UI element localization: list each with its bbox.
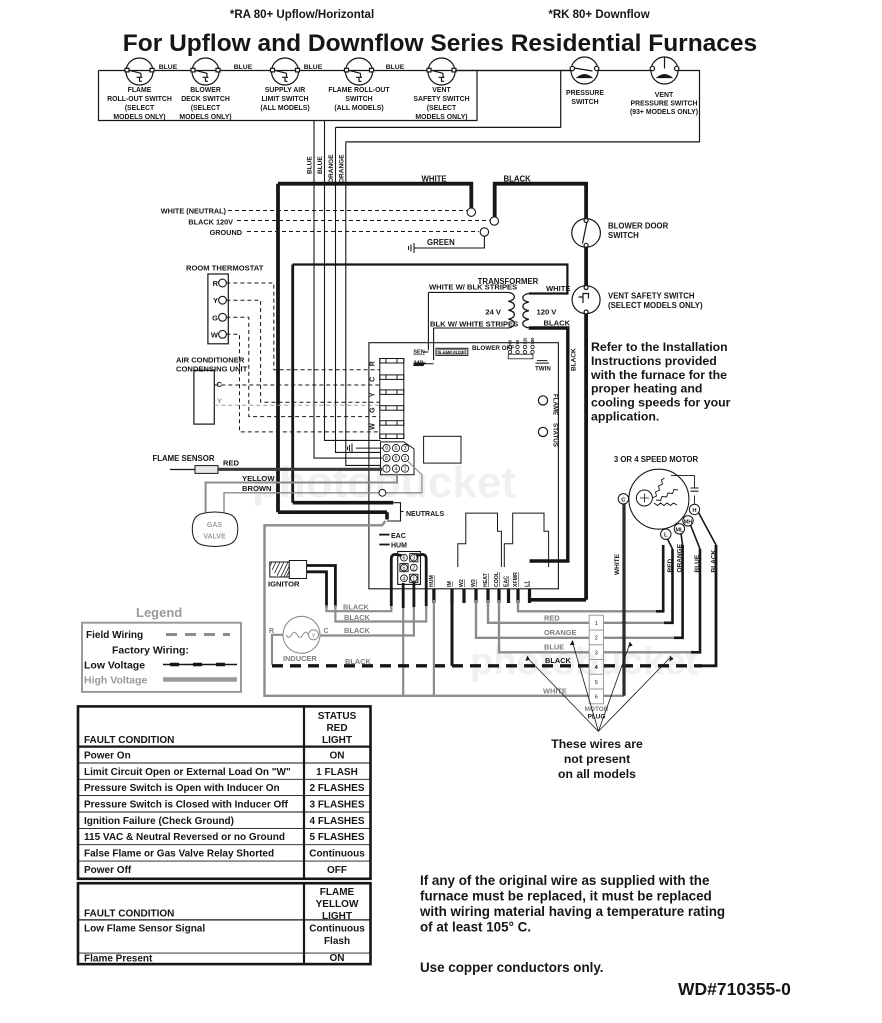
svg-text:1: 1 xyxy=(595,621,598,627)
svg-text:Use copper conductors only.: Use copper conductors only. xyxy=(420,960,604,975)
svg-text:Flame Present: Flame Present xyxy=(84,954,153,965)
svg-text:IGNITOR: IGNITOR xyxy=(268,580,300,589)
svg-text:photobucket: photobucket xyxy=(470,641,698,683)
svg-text:RED: RED xyxy=(223,459,240,468)
svg-text:3 FLASHES: 3 FLASHES xyxy=(309,799,364,810)
svg-text:4: 4 xyxy=(595,665,598,671)
svg-text:5: 5 xyxy=(403,566,406,572)
svg-text:L: L xyxy=(664,533,668,539)
svg-text:120 V: 120 V xyxy=(537,308,558,317)
svg-text:HUM: HUM xyxy=(429,575,435,587)
svg-text:W3: W3 xyxy=(471,579,477,587)
svg-text:L1: L1 xyxy=(525,581,531,587)
svg-text:4: 4 xyxy=(403,576,406,582)
svg-text:STATUS: STATUS xyxy=(552,423,559,447)
svg-text:2: 2 xyxy=(412,566,415,572)
svg-text:RED: RED xyxy=(667,558,674,572)
svg-text:6: 6 xyxy=(403,556,406,562)
svg-text:Low Voltage: Low Voltage xyxy=(84,660,145,672)
svg-text:8: 8 xyxy=(385,456,388,462)
svg-text:1: 1 xyxy=(404,467,407,473)
svg-text:HEAT: HEAT xyxy=(483,572,489,587)
svg-text:ON: ON xyxy=(330,953,345,964)
svg-text:False Flame or Gas Valve Relay: False Flame or Gas Valve Relay Shorted xyxy=(84,849,274,860)
svg-text:4 FLASHES: 4 FLASHES xyxy=(309,816,364,827)
svg-text:120: 120 xyxy=(523,337,528,345)
svg-text:BLUE: BLUE xyxy=(304,64,323,71)
svg-text:G: G xyxy=(212,313,218,322)
svg-text:SUPPLY AIRLIMIT SWITCH(ALL MOD: SUPPLY AIRLIMIT SWITCH(ALL MODELS) xyxy=(260,87,309,112)
svg-text:WHITE: WHITE xyxy=(614,553,621,575)
svg-text:WHITE (NEUTRAL): WHITE (NEUTRAL) xyxy=(161,207,227,216)
svg-text:EAC: EAC xyxy=(504,576,510,587)
svg-text:BLACK: BLACK xyxy=(344,613,371,622)
svg-text:Continuous: Continuous xyxy=(309,849,365,860)
svg-text:BLACK: BLACK xyxy=(711,549,718,572)
svg-text:*RK 80+ Downflow: *RK 80+ Downflow xyxy=(548,9,649,21)
svg-text:BLOWER OFF: BLOWER OFF xyxy=(472,345,514,352)
svg-text:1 FLASH: 1 FLASH xyxy=(316,767,358,778)
svg-text:BLACK: BLACK xyxy=(545,656,572,665)
svg-text:ROOM THERMOSTAT: ROOM THERMOSTAT xyxy=(186,264,264,273)
svg-text:H: H xyxy=(692,508,696,514)
svg-text:WHITE: WHITE xyxy=(543,687,567,696)
svg-text:GROUND: GROUND xyxy=(210,228,242,237)
svg-text:R: R xyxy=(370,361,377,366)
svg-text:ON: ON xyxy=(330,750,345,761)
svg-text:BLACK: BLACK xyxy=(344,626,371,635)
svg-text:WHITE W/ BLK STRIPES: WHITE W/ BLK STRIPES xyxy=(429,283,517,292)
svg-text:2 FLASHES: 2 FLASHES xyxy=(309,783,364,794)
svg-text:BLACK: BLACK xyxy=(544,319,571,328)
svg-text:G: G xyxy=(370,407,377,413)
svg-text:MH: MH xyxy=(684,519,692,525)
svg-text:BLUE: BLUE xyxy=(694,554,701,572)
svg-text:3 OR 4 SPEED MOTOR: 3 OR 4 SPEED MOTOR xyxy=(614,455,699,464)
svg-text:WHITE: WHITE xyxy=(546,284,570,293)
svg-text:BLUE: BLUE xyxy=(234,64,253,71)
svg-text:5 AMP FUSE: 5 AMP FUSE xyxy=(439,350,465,355)
svg-text:GAS: GAS xyxy=(207,522,223,529)
svg-text:C: C xyxy=(324,628,329,635)
svg-text:1: 1 xyxy=(412,576,415,582)
svg-text:W: W xyxy=(370,423,377,430)
svg-text:BLUE: BLUE xyxy=(317,156,324,174)
svg-text:BLACK 120V: BLACK 120V xyxy=(188,218,233,227)
svg-text:5 FLASHES: 5 FLASHES xyxy=(309,832,364,843)
svg-text:These wires arenot presenton a: These wires arenot presenton all models xyxy=(551,737,643,781)
svg-text:For Upflow and Downflow Series: For Upflow and Downflow Series Residenti… xyxy=(123,30,757,57)
svg-text:Y: Y xyxy=(370,392,377,397)
svg-text:BLUE: BLUE xyxy=(544,643,564,652)
svg-text:HUM: HUM xyxy=(391,543,407,550)
svg-text:ORANGE: ORANGE xyxy=(544,628,577,637)
svg-text:BLACK: BLACK xyxy=(343,603,370,612)
svg-text:BLUE: BLUE xyxy=(159,64,178,71)
svg-text:Low Flame Sensor Signal: Low Flame Sensor Signal xyxy=(84,924,205,935)
svg-text:ORANGE: ORANGE xyxy=(328,154,335,183)
svg-text:Power Off: Power Off xyxy=(84,865,132,876)
svg-text:VENT SAFETY SWITCH(SELECT MODE: VENT SAFETY SWITCH(SELECT MODELS ONLY) xyxy=(608,292,703,311)
svg-text:W2: W2 xyxy=(459,579,465,587)
svg-text:FAULT CONDITION: FAULT CONDITION xyxy=(84,735,174,746)
svg-text:Power On: Power On xyxy=(84,750,131,761)
svg-text:BLUE: BLUE xyxy=(307,156,314,174)
svg-text:Limit Circuit Open or External: Limit Circuit Open or External Load On "… xyxy=(84,767,291,778)
svg-text:60: 60 xyxy=(508,339,513,344)
svg-text:C: C xyxy=(370,377,377,382)
svg-text:Legend: Legend xyxy=(136,605,182,620)
svg-text:BLUE: BLUE xyxy=(386,64,405,71)
svg-text:Pressure Switch is Open with I: Pressure Switch is Open with Inducer On xyxy=(84,783,280,794)
svg-text:R: R xyxy=(213,279,219,288)
svg-text:BLK W/ WHITE STRIPES: BLK W/ WHITE STRIPES xyxy=(430,320,518,329)
svg-text:WHITE: WHITE xyxy=(422,175,447,184)
svg-text:Ignition Failure (Check Ground: Ignition Failure (Check Ground) xyxy=(84,816,234,827)
svg-text:ML: ML xyxy=(676,527,684,533)
svg-text:W: W xyxy=(211,330,219,339)
svg-text:INDUCER: INDUCER xyxy=(283,654,317,663)
svg-text:EAC: EAC xyxy=(391,533,406,540)
svg-text:FLAME SENSOR: FLAME SENSOR xyxy=(153,454,215,463)
svg-text:High Voltage: High Voltage xyxy=(84,675,148,687)
svg-text:2: 2 xyxy=(595,636,598,642)
svg-text:Factory Wiring:: Factory Wiring: xyxy=(112,645,189,657)
svg-text:4: 4 xyxy=(395,467,398,473)
svg-text:OFF: OFF xyxy=(327,865,347,876)
svg-text:WD#710355-0: WD#710355-0 xyxy=(678,979,791,999)
svg-text:3: 3 xyxy=(404,446,407,452)
svg-text:6: 6 xyxy=(595,695,598,701)
svg-text:24 V: 24 V xyxy=(485,308,502,317)
svg-text:FAULT CONDITION: FAULT CONDITION xyxy=(84,909,174,920)
svg-text:GREEN: GREEN xyxy=(427,238,455,247)
svg-text:FLAME: FLAME xyxy=(552,394,559,415)
svg-text:VALVE: VALVE xyxy=(203,534,226,541)
svg-text:BROWN: BROWN xyxy=(242,484,272,493)
svg-text:2: 2 xyxy=(404,456,407,462)
svg-text:COOL: COOL xyxy=(494,571,500,587)
svg-text:IM: IM xyxy=(447,581,453,587)
svg-text:*RA 80+ Upflow/Horizontal: *RA 80+ Upflow/Horizontal xyxy=(230,9,374,21)
svg-text:NEUTRALS: NEUTRALS xyxy=(406,511,444,518)
svg-text:RED: RED xyxy=(544,614,560,623)
svg-text:3: 3 xyxy=(412,556,415,562)
svg-text:Pressure Switch is Closed with: Pressure Switch is Closed with Inducer O… xyxy=(84,799,289,810)
svg-text:5: 5 xyxy=(395,456,398,462)
svg-text:3: 3 xyxy=(595,650,598,656)
svg-text:TWIN: TWIN xyxy=(535,366,551,373)
svg-text:Y: Y xyxy=(213,296,218,305)
svg-text:180: 180 xyxy=(530,337,535,345)
svg-text:115 VAC & Neutral Reversed or: 115 VAC & Neutral Reversed or no Ground xyxy=(84,832,285,843)
svg-text:ORANGE: ORANGE xyxy=(339,154,346,183)
svg-text:SEN: SEN xyxy=(413,350,424,356)
svg-text:BLACK: BLACK xyxy=(571,348,578,371)
svg-text:7: 7 xyxy=(385,467,388,473)
svg-text:90: 90 xyxy=(515,339,520,344)
svg-text:ORANGE: ORANGE xyxy=(677,543,684,572)
svg-text:BLACK: BLACK xyxy=(504,175,532,184)
svg-text:5: 5 xyxy=(595,680,598,686)
svg-text:Field Wiring: Field Wiring xyxy=(86,630,143,641)
svg-text:XFMR: XFMR xyxy=(513,572,519,587)
svg-text:Y: Y xyxy=(312,633,316,639)
svg-text:Y: Y xyxy=(217,397,222,406)
svg-text:9: 9 xyxy=(385,446,388,452)
svg-text:6: 6 xyxy=(395,446,398,452)
